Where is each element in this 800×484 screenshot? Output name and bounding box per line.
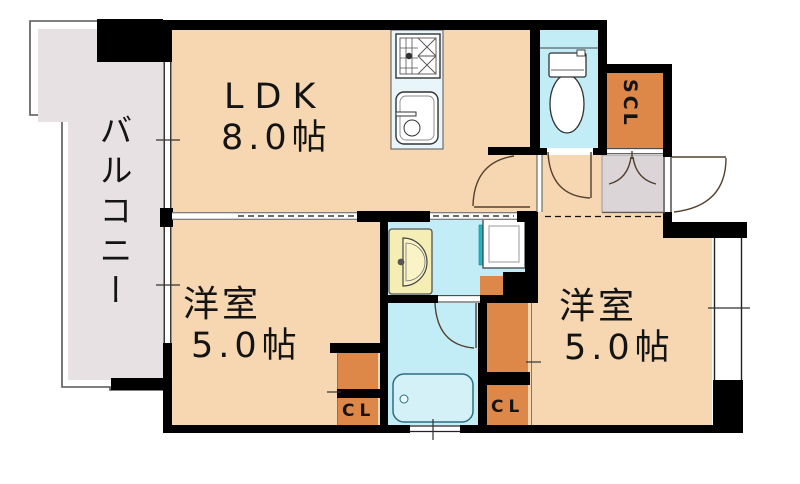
- closet-right-label: CL: [491, 399, 524, 416]
- floorplan-canvas: バルコニー LDK 8.0帖 洋室 5.0帖 洋室 5.0帖 SCL CL CL: [0, 0, 800, 484]
- bathtub-icon: [393, 374, 473, 422]
- ldk-room-size: 8.0帖: [221, 121, 332, 156]
- washbasin-icon: [389, 229, 432, 294]
- gas-stove-icon: [396, 34, 440, 78]
- shoe-closet-label: SCL: [620, 79, 639, 128]
- balcony-label: バルコニー: [97, 113, 130, 313]
- bedroom-right-label: 洋室: [559, 289, 637, 325]
- bedroom-left-label: 洋室: [183, 287, 261, 323]
- closet-left-label: CL: [342, 403, 375, 420]
- bedroom-right-size: 5.0帖: [564, 331, 675, 366]
- kitchen-sink-icon: [396, 92, 438, 144]
- entrance-door-swing: [672, 157, 726, 212]
- washing-machine-pan-icon: [479, 219, 525, 268]
- bedroom-left-size: 5.0帖: [191, 329, 302, 364]
- ldk-room-label: LDK: [224, 80, 326, 115]
